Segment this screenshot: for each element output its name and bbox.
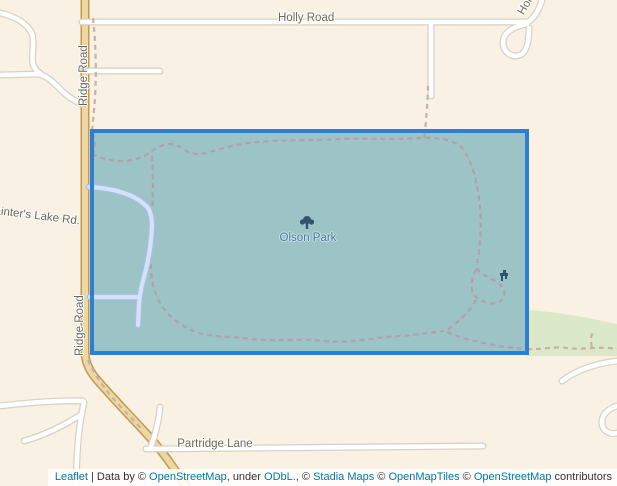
selection-fill[interactable]: [92, 131, 527, 353]
openstreetmap-link-1[interactable]: OpenStreetMap: [149, 471, 227, 483]
openmaptiles-link[interactable]: OpenMapTiles: [388, 471, 459, 483]
stadia-maps-link[interactable]: Stadia Maps: [313, 471, 374, 483]
attribution-text: ©: [374, 471, 388, 483]
attribution-text: | Data by ©: [88, 471, 149, 483]
attribution-text: , ©: [296, 471, 313, 483]
attribution-text: ©: [460, 471, 474, 483]
attribution-text: contributors: [551, 471, 612, 483]
leaflet-link[interactable]: Leaflet: [55, 471, 88, 483]
map[interactable]: [0, 0, 617, 486]
odbl-link[interactable]: ODbL.: [264, 471, 296, 483]
map-viewport: Holly Road Hol Ridge Road Ridge Road Pai…: [0, 0, 617, 486]
attribution-text: , under: [227, 471, 264, 483]
openstreetmap-link-2[interactable]: OpenStreetMap: [474, 471, 552, 483]
attribution-bar: Leaflet | Data by © OpenStreetMap, under…: [48, 469, 617, 486]
